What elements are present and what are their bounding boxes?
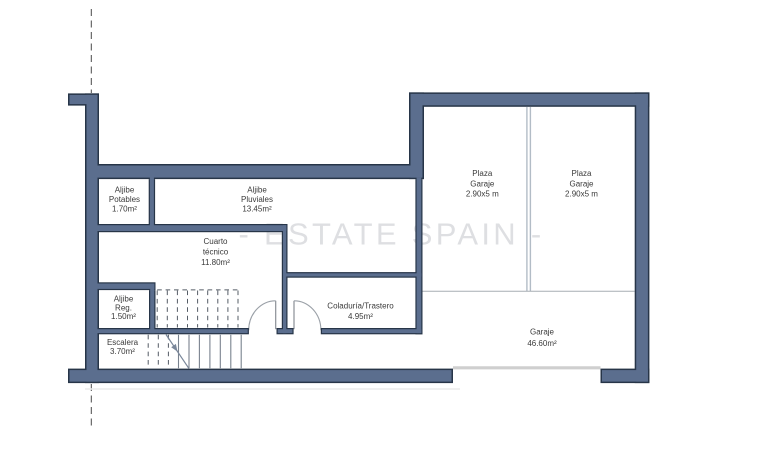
svg-text:Plaza: Plaza bbox=[472, 169, 493, 178]
svg-text:46.60m²: 46.60m² bbox=[527, 339, 557, 348]
svg-text:2.90x5 m: 2.90x5 m bbox=[565, 189, 598, 198]
svg-text:Garaje: Garaje bbox=[569, 180, 594, 189]
svg-text:1.50m²: 1.50m² bbox=[111, 312, 136, 321]
svg-text:3.70m²: 3.70m² bbox=[110, 347, 135, 356]
svg-text:Aljibe: Aljibe bbox=[115, 185, 135, 194]
svg-text:Cuarto: Cuarto bbox=[203, 237, 228, 246]
svg-text:técnico: técnico bbox=[203, 247, 229, 256]
svg-text:Reg.: Reg. bbox=[115, 303, 132, 312]
svg-text:Plaza: Plaza bbox=[571, 169, 592, 178]
svg-text:4.95m²: 4.95m² bbox=[348, 312, 373, 321]
svg-text:Aljibe: Aljibe bbox=[114, 294, 134, 303]
svg-text:Garaje: Garaje bbox=[530, 327, 555, 336]
svg-text:Escalera: Escalera bbox=[107, 338, 139, 347]
svg-text:Coladuría/Trastero: Coladuría/Trastero bbox=[327, 301, 394, 310]
svg-text:2.90x5 m: 2.90x5 m bbox=[466, 189, 499, 198]
svg-text:11.80m²: 11.80m² bbox=[201, 258, 230, 267]
svg-text:Aljibe: Aljibe bbox=[247, 185, 267, 194]
svg-text:Potables: Potables bbox=[109, 195, 140, 204]
svg-text:Pluviales: Pluviales bbox=[241, 195, 273, 204]
svg-text:Garaje: Garaje bbox=[470, 180, 495, 189]
svg-text:13.45m²: 13.45m² bbox=[242, 204, 272, 213]
svg-text:1.70m²: 1.70m² bbox=[112, 204, 137, 213]
